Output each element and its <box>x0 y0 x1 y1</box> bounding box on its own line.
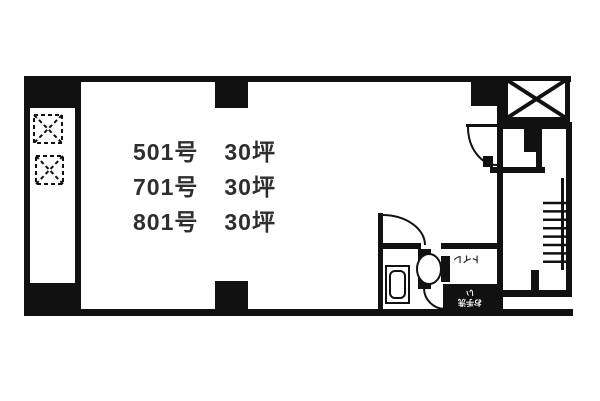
toilet-fixture <box>417 254 450 284</box>
unit-row-501: 501号 30坪 <box>133 139 276 165</box>
plan-linework <box>0 0 600 401</box>
shaft-x-diagonals <box>507 80 566 118</box>
unit-row-801: 801号 30坪 <box>133 209 276 235</box>
door-arc-stair-vestibule <box>468 127 497 165</box>
door-arc-toilet-lower <box>424 288 445 309</box>
washroom-label: お手洗い <box>458 287 482 307</box>
pipe-space-symbol-2 <box>36 156 63 184</box>
toilet-room-label: トイレ <box>449 253 485 266</box>
door-arc-washroom-entry <box>382 215 425 245</box>
unit-area: 30坪 <box>224 174 276 200</box>
unit-area: 30坪 <box>224 139 276 165</box>
unit-row-701: 701号 30坪 <box>133 174 276 200</box>
staircase <box>543 178 571 270</box>
unit-list: 501号 30坪 701号 30坪 801号 30坪 <box>133 139 276 244</box>
washroom-label-band: お手洗い <box>443 284 497 309</box>
washbasin-fixture <box>386 266 409 303</box>
unit-number: 701号 <box>133 174 198 200</box>
floor-plan-canvas: 501号 30坪 701号 30坪 801号 30坪 トイレ お手洗い <box>0 0 600 401</box>
pipe-space-symbol-1 <box>34 115 62 143</box>
unit-number: 501号 <box>133 139 198 165</box>
unit-area: 30坪 <box>224 209 276 235</box>
unit-number: 801号 <box>133 209 198 235</box>
